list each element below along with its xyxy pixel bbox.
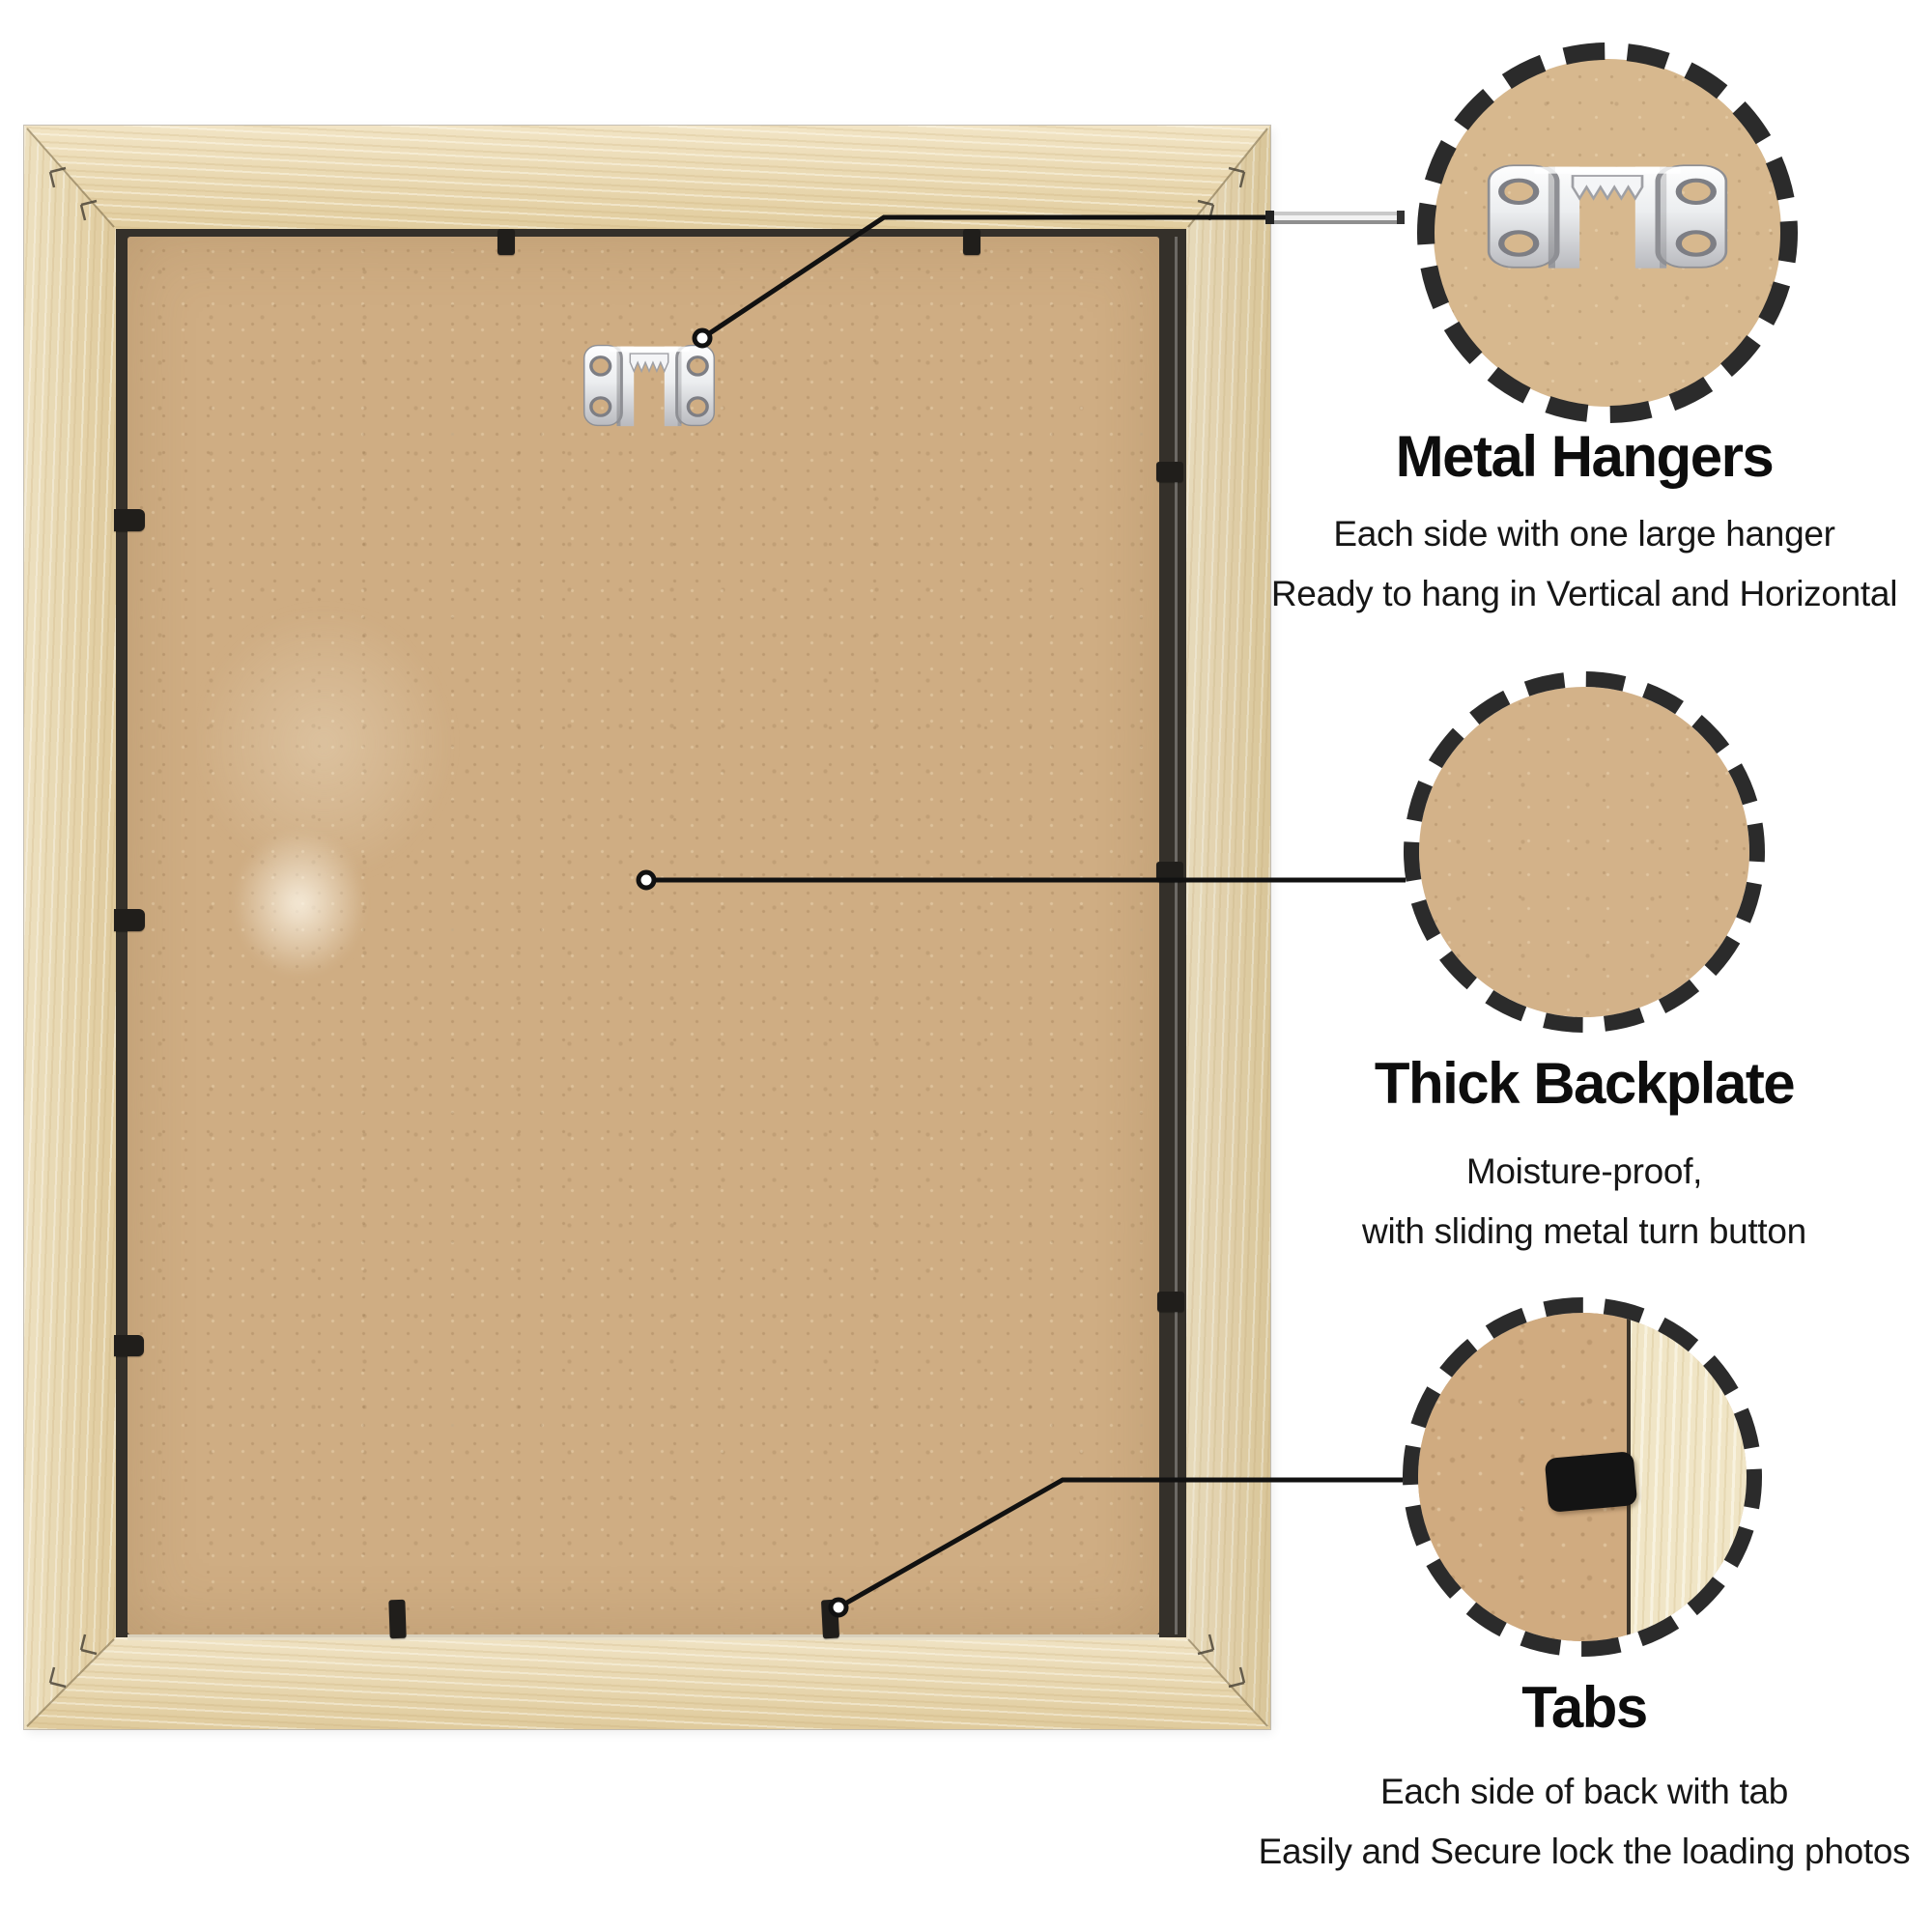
frame-rail-bottom <box>24 1637 1270 1729</box>
flash-glow <box>150 560 497 927</box>
tab-right-lower <box>1157 1292 1184 1312</box>
thick-backplate-desc-line1: Moisture-proof, <box>1217 1142 1932 1202</box>
tab-left-lower <box>114 1335 144 1356</box>
frame-rail-top <box>24 126 1270 229</box>
tab-left-upper <box>114 509 145 531</box>
metal-hanger-closeup-circle <box>1434 59 1781 407</box>
tabs-description: Each side of back with tab Easily and Se… <box>1217 1762 1932 1882</box>
thick-backplate-desc-line2: with sliding metal turn button <box>1217 1202 1932 1262</box>
closeup-wood-half <box>1630 1313 1747 1641</box>
tab-bottom-left <box>388 1600 406 1639</box>
tab-right-middle <box>1156 862 1183 882</box>
tabs-desc-line2: Easily and Secure lock the loading photo… <box>1217 1822 1932 1882</box>
flash-highlight <box>208 802 391 1005</box>
thick-backplate-title: Thick Backplate <box>1217 1053 1932 1114</box>
frame-rail-left <box>24 126 116 1729</box>
tab-top-right <box>963 229 980 255</box>
frame-back-infographic: Metal Hangers Each side with one large h… <box>0 0 1932 1932</box>
locking-tab-icon <box>1545 1451 1638 1513</box>
tab-closeup-circle <box>1418 1313 1747 1641</box>
metal-hangers-title: Metal Hangers <box>1217 426 1932 487</box>
tab-right-upper <box>1156 462 1183 482</box>
tab-top-left <box>497 229 515 255</box>
metal-hangers-description: Each side with one large hanger Ready to… <box>1217 504 1932 624</box>
metal-hangers-desc-line1: Each side with one large hanger <box>1217 504 1932 564</box>
backplate-bottom-edge <box>128 1634 1159 1640</box>
mdf-backplate <box>128 237 1159 1634</box>
tabs-desc-line1: Each side of back with tab <box>1217 1762 1932 1822</box>
backplate-edge-highlight <box>1175 237 1178 1634</box>
metal-hangers-desc-line2: Ready to hang in Vertical and Horizontal <box>1217 564 1932 624</box>
tab-left-middle <box>114 909 145 931</box>
tab-bottom-right <box>821 1600 839 1639</box>
tabs-title: Tabs <box>1217 1677 1932 1738</box>
frame-rail-right <box>1186 126 1270 1729</box>
backplate-closeup-circle <box>1419 687 1749 1017</box>
thick-backplate-description: Moisture-proof, with sliding metal turn … <box>1217 1142 1932 1262</box>
